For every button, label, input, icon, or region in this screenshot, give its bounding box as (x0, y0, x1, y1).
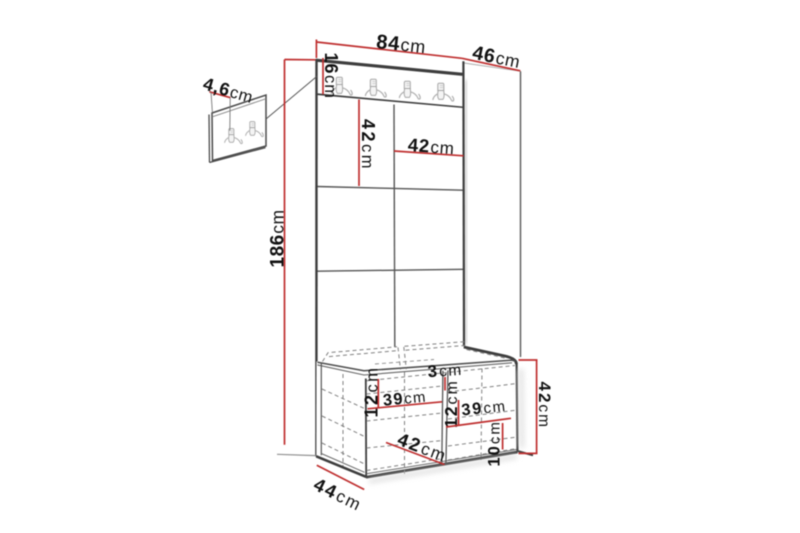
svg-text:12cm: 12cm (362, 365, 382, 417)
svg-text:4,6cm: 4,6cm (201, 74, 256, 107)
svg-text:42cm: 42cm (535, 382, 554, 430)
svg-text:42cm: 42cm (358, 119, 378, 171)
svg-text:12cm: 12cm (441, 379, 461, 428)
svg-text:186cm: 186cm (268, 209, 289, 267)
svg-text:10cm: 10cm (486, 420, 504, 466)
svg-text:16cm: 16cm (321, 53, 341, 100)
svg-text:3cm: 3cm (427, 360, 463, 381)
svg-text:44cm: 44cm (310, 474, 366, 516)
svg-text:84cm: 84cm (375, 31, 427, 58)
